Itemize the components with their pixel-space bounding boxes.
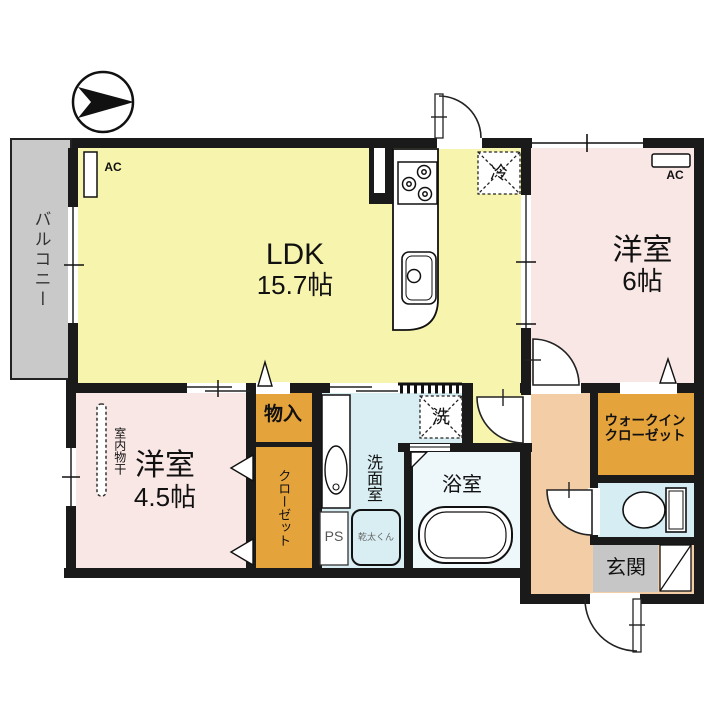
gas-dryer-label: 乾太くん (352, 529, 400, 545)
plan-graphics (0, 0, 720, 720)
window-bedroom45 (62, 448, 80, 506)
entrance-label: 玄関 (596, 554, 656, 582)
sliding-doors (187, 380, 398, 397)
door-exterior-top (431, 94, 481, 138)
wic-label: ウォークイン クローゼット (598, 405, 692, 451)
washroom-label: 洗面室 (360, 441, 384, 515)
pipe-space-label: PS (320, 527, 348, 547)
door-bedroom6 (525, 339, 579, 385)
indoor-drying-label: 室内物干 (108, 406, 130, 496)
vanity-icon (322, 395, 350, 508)
storage-label: 物入 (254, 401, 312, 429)
ac-unit-ldk-icon (84, 152, 97, 197)
bathtub-icon (419, 507, 512, 563)
door-toilet (547, 482, 592, 535)
sliding-door-bedroom45 (187, 380, 250, 397)
bath-fold-door-icon (411, 452, 427, 468)
north-arrow-icon (73, 72, 134, 132)
window-bedroom6-top (532, 134, 643, 152)
accordion-divider (398, 384, 462, 389)
sink-icon (402, 252, 436, 304)
wic-bifold-icon (660, 359, 676, 383)
ldk-label: LDK 15.7帖 (210, 233, 380, 305)
shoe-cabinet-icon (660, 545, 691, 591)
ac-unit-bedroom6-icon (652, 154, 690, 167)
storage-bifold-icon (258, 362, 272, 386)
sliding-door-washroom (330, 387, 398, 391)
closet-label: クローゼット (271, 452, 295, 564)
window-balcony-door (64, 207, 84, 323)
balcony-label: バルコニー (24, 195, 58, 325)
ac-bedroom6-label: AC (658, 168, 692, 184)
fridge-space-label: 冷 (486, 160, 512, 186)
bathroom-label: 浴室 (427, 472, 497, 498)
ac-ldk-label: AC (99, 160, 127, 176)
door-ldk-hall (477, 389, 523, 443)
stove-icon (398, 162, 437, 204)
bedroom6-label: 洋室 6帖 (575, 226, 710, 304)
floor-plan: バルコニー LDK 15.7帖 洋室 6帖 洋室 4.5帖 室内物干 物入 クロ… (0, 0, 720, 720)
closet-door-icon (231, 539, 253, 565)
partition-ldk-bedroom6 (516, 195, 536, 328)
washer-space-label: 洗 (428, 404, 454, 430)
door-entrance (585, 599, 645, 652)
toilet-icon (623, 488, 686, 532)
